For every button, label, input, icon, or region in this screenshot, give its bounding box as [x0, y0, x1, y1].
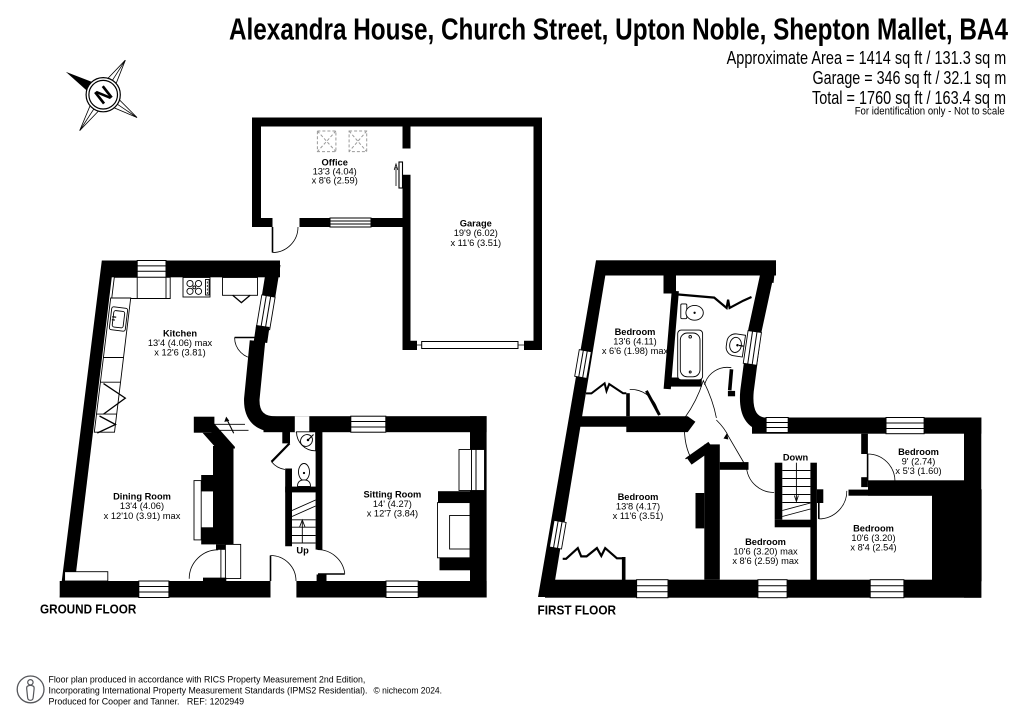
svg-text:14' (4.27): 14' (4.27): [373, 499, 412, 509]
svg-text:13'6 (4.11): 13'6 (4.11): [613, 337, 656, 347]
svg-text:x 8'4 (2.54): x 8'4 (2.54): [850, 543, 896, 553]
svg-text:x 12'10 (3.91) max: x 12'10 (3.91) max: [104, 511, 181, 521]
svg-text:Bedroom: Bedroom: [615, 327, 656, 337]
svg-text:10'6 (3.20) max: 10'6 (3.20) max: [733, 547, 798, 557]
svg-text:Down: Down: [783, 453, 809, 463]
svg-text:Sitting Room: Sitting Room: [363, 490, 421, 500]
svg-text:13'8 (4.17): 13'8 (4.17): [616, 502, 660, 512]
svg-text:FIRST FLOOR: FIRST FLOOR: [538, 602, 617, 617]
svg-text:19'9 (6.02): 19'9 (6.02): [454, 228, 498, 238]
svg-text:Alexandra House, Church Street: Alexandra House, Church Street, Upton No…: [229, 13, 1008, 47]
svg-text:© nichecom 2024.: © nichecom 2024.: [374, 685, 443, 696]
svg-text:Bedroom: Bedroom: [745, 537, 786, 547]
svg-text:Produced for Cooper and Tanner: Produced for Cooper and Tanner. REF: 120…: [49, 696, 245, 707]
svg-text:For identification only - Not: For identification only - Not to scale: [855, 106, 1005, 118]
svg-text:x 8'6 (2.59): x 8'6 (2.59): [312, 176, 358, 186]
svg-text:13'4 (4.06): 13'4 (4.06): [120, 501, 164, 511]
svg-text:x 11'6 (3.51): x 11'6 (3.51): [450, 238, 501, 248]
svg-text:Floor plan produced in accorda: Floor plan produced in accordance with R…: [49, 674, 366, 685]
svg-text:x 12'6 (3.81): x 12'6 (3.81): [154, 347, 205, 357]
svg-text:Bedroom: Bedroom: [618, 492, 659, 502]
svg-text:Bedroom: Bedroom: [853, 524, 894, 534]
svg-text:10'6 (3.20): 10'6 (3.20): [851, 533, 895, 543]
svg-text:x 12'7 (3.84): x 12'7 (3.84): [367, 509, 418, 519]
svg-text:x 6'6 (1.98) max: x 6'6 (1.98) max: [602, 346, 669, 356]
svg-text:GROUND FLOOR: GROUND FLOOR: [40, 601, 137, 616]
svg-text:Bedroom: Bedroom: [898, 447, 939, 457]
svg-text:Garage: Garage: [460, 219, 492, 229]
svg-text:x 8'6 (2.59) max: x 8'6 (2.59) max: [732, 556, 799, 566]
svg-text:9' (2.74): 9' (2.74): [902, 457, 936, 467]
svg-text:Dining Room: Dining Room: [113, 492, 171, 502]
svg-text:Garage = 346 sq ft / 32.1 sq m: Garage = 346 sq ft / 32.1 sq m: [813, 68, 1007, 88]
svg-text:Up: Up: [296, 546, 309, 556]
svg-text:Approximate Area = 1414 sq ft: Approximate Area = 1414 sq ft / 131.3 sq…: [727, 48, 1007, 68]
svg-text:x 5'3 (1.60): x 5'3 (1.60): [895, 466, 941, 476]
svg-text:Incorporating International Pr: Incorporating International Property Mea…: [49, 685, 368, 696]
svg-text:x 11'6 (3.51): x 11'6 (3.51): [613, 511, 664, 521]
